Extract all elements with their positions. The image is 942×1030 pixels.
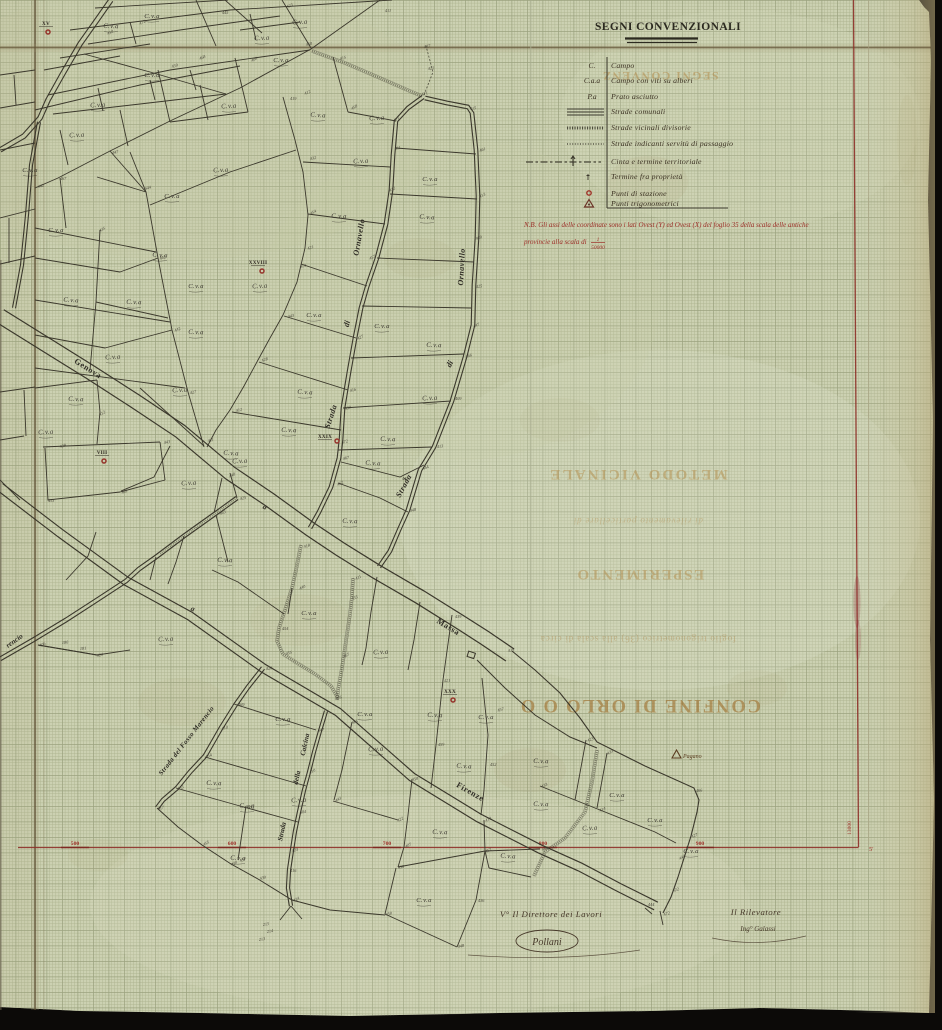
svg-text:Strade vicinali divisorie: Strade vicinali divisorie bbox=[611, 123, 691, 132]
svg-text:C.v.a: C.v.a bbox=[353, 158, 369, 166]
svg-text:C.v.a: C.v.a bbox=[422, 176, 438, 183]
svg-text:C.v.a: C.v.a bbox=[254, 35, 270, 43]
svg-text:439: 439 bbox=[455, 614, 462, 619]
svg-text:C.v.a: C.v.a bbox=[374, 323, 390, 330]
svg-text:C.v.a: C.v.a bbox=[533, 758, 549, 766]
svg-text:C.v.a: C.v.a bbox=[206, 780, 222, 788]
svg-text:C.v.a: C.v.a bbox=[422, 395, 438, 403]
svg-text:Strade indicanti servitù di pa: Strade indicanti servitù di passaggio bbox=[611, 139, 733, 148]
svg-text:C.a.a: C.a.a bbox=[584, 76, 601, 85]
svg-text:C.v.a: C.v.a bbox=[172, 387, 188, 395]
svg-text:Ing° Galassi: Ing° Galassi bbox=[739, 925, 775, 933]
svg-text:C.v.a: C.v.a bbox=[427, 712, 443, 720]
svg-text:VIII: VIII bbox=[97, 450, 108, 456]
svg-text:500: 500 bbox=[71, 841, 80, 847]
svg-text:C.v.a: C.v.a bbox=[213, 167, 229, 175]
svg-text:C.v.a: C.v.a bbox=[217, 557, 233, 565]
svg-text:Strade comunali: Strade comunali bbox=[611, 107, 665, 116]
svg-text:900: 900 bbox=[696, 841, 705, 847]
svg-text:N.B. Gli assi delle coordinate: N.B. Gli assi delle coordinate sono i la… bbox=[523, 221, 809, 229]
svg-text:445: 445 bbox=[222, 10, 229, 15]
svg-text:METODO VICINALE: METODO VICINALE bbox=[548, 466, 728, 482]
svg-text:C.v.a: C.v.a bbox=[90, 102, 106, 110]
svg-text:C.v.a: C.v.a bbox=[647, 817, 663, 824]
svg-text:ESPERIMENTO: ESPERIMENTO bbox=[576, 566, 704, 582]
svg-text:foglio trigonometrico (36) all: foglio trigonometrico (36) alla scala di… bbox=[540, 634, 736, 644]
svg-text:467: 467 bbox=[60, 176, 67, 181]
svg-text:C.v.a: C.v.a bbox=[533, 801, 549, 809]
svg-text:1: 1 bbox=[597, 237, 600, 243]
svg-text:C.v.a: C.v.a bbox=[126, 299, 142, 307]
svg-text:700: 700 bbox=[383, 841, 392, 847]
svg-text:419: 419 bbox=[290, 96, 297, 101]
svg-text:C.v.a: C.v.a bbox=[275, 716, 291, 723]
svg-text:C.v.a: C.v.a bbox=[181, 480, 197, 488]
svg-text:XV: XV bbox=[42, 21, 50, 27]
svg-text:C.v.a: C.v.a bbox=[426, 342, 442, 350]
svg-text:C.v.a: C.v.a bbox=[365, 459, 381, 467]
svg-text:C.v.a: C.v.a bbox=[22, 167, 38, 174]
svg-text:C.v.a: C.v.a bbox=[188, 283, 204, 290]
svg-text:444: 444 bbox=[648, 902, 655, 907]
svg-text:C.v.a: C.v.a bbox=[432, 829, 448, 837]
svg-text:C.v.a: C.v.a bbox=[105, 354, 121, 362]
svg-text:C.v.a: C.v.a bbox=[232, 458, 248, 466]
svg-text:C.v.a: C.v.a bbox=[48, 227, 64, 234]
svg-text:XXX: XXX bbox=[444, 689, 456, 695]
svg-text:Punti di stazione: Punti di stazione bbox=[610, 189, 667, 198]
svg-text:Punti trigonometrici: Punti trigonometrici bbox=[610, 199, 679, 208]
svg-text:C.v.a: C.v.a bbox=[252, 283, 268, 291]
svg-text:C.v.a: C.v.a bbox=[342, 518, 358, 526]
svg-text:Il Rilevatore: Il Rilevatore bbox=[730, 907, 781, 917]
svg-text:Cinta e termine territoriale: Cinta e termine territoriale bbox=[611, 157, 702, 166]
svg-text:C.v.a: C.v.a bbox=[582, 825, 598, 833]
svg-text:C.v.a: C.v.a bbox=[281, 427, 297, 435]
svg-text:421: 421 bbox=[444, 678, 451, 683]
svg-text:Pagano: Pagano bbox=[682, 754, 702, 760]
svg-text:C.v.a: C.v.a bbox=[292, 19, 308, 27]
svg-text:452: 452 bbox=[490, 762, 497, 767]
svg-text:436: 436 bbox=[478, 898, 485, 903]
svg-text:di rilevamento particellare di: di rilevamento particellare di bbox=[573, 516, 703, 526]
svg-text:454: 454 bbox=[282, 626, 289, 631]
svg-text:C.v.a: C.v.a bbox=[310, 111, 326, 119]
svg-text:C.v.a: C.v.a bbox=[68, 396, 84, 404]
svg-text:C.v.a: C.v.a bbox=[416, 897, 432, 904]
svg-text:provincie alla scala di: provincie alla scala di bbox=[523, 238, 587, 246]
svg-text:413: 413 bbox=[437, 443, 444, 449]
svg-text:C.v.a: C.v.a bbox=[368, 746, 384, 754]
svg-text:Campo con viti su alberi: Campo con viti su alberi bbox=[611, 76, 693, 85]
svg-text:C.v.a: C.v.a bbox=[63, 296, 79, 304]
svg-text:C.v.a: C.v.a bbox=[331, 213, 347, 221]
svg-text:466: 466 bbox=[696, 788, 704, 793]
svg-text:SEGNI CONVENZIONALI: SEGNI CONVENZIONALI bbox=[595, 21, 741, 33]
svg-text:CONFINE DI ORLO O O: CONFINE DI ORLO O O bbox=[519, 695, 761, 715]
svg-text:C.v.a: C.v.a bbox=[144, 72, 160, 79]
svg-text:C.v.a: C.v.a bbox=[373, 649, 389, 657]
svg-text:C.: C. bbox=[589, 61, 596, 70]
svg-text:Termine fra proprietà: Termine fra proprietà bbox=[611, 172, 683, 181]
svg-text:411: 411 bbox=[385, 8, 391, 13]
svg-text:C.v.a: C.v.a bbox=[301, 610, 317, 617]
svg-text:469: 469 bbox=[238, 702, 245, 707]
svg-text:C.v.a: C.v.a bbox=[306, 312, 322, 319]
svg-text:V° Il Direttore dei Lavori: V° Il Direttore dei Lavori bbox=[500, 909, 602, 919]
svg-text:409: 409 bbox=[455, 396, 462, 401]
svg-text:C.v.a: C.v.a bbox=[291, 797, 307, 805]
svg-text:181: 181 bbox=[80, 645, 87, 651]
svg-text:600: 600 bbox=[228, 841, 237, 847]
svg-text:C.v.a: C.v.a bbox=[369, 115, 385, 123]
svg-text:C.v.a: C.v.a bbox=[221, 103, 237, 111]
svg-text:C.v.a: C.v.a bbox=[609, 792, 625, 799]
svg-text:5': 5' bbox=[869, 846, 873, 853]
svg-text:C.v.a: C.v.a bbox=[158, 636, 174, 644]
svg-text:P.a: P.a bbox=[586, 92, 596, 101]
svg-text:C.v.a: C.v.a bbox=[223, 449, 239, 457]
svg-text:C.v.a: C.v.a bbox=[69, 132, 85, 140]
svg-text:C.v.a: C.v.a bbox=[683, 848, 699, 855]
svg-text:C.v.a: C.v.a bbox=[478, 714, 494, 721]
svg-text:C.v.a: C.v.a bbox=[144, 13, 160, 20]
svg-text:C.v.a: C.v.a bbox=[188, 329, 204, 337]
svg-text:C.v.a: C.v.a bbox=[297, 388, 313, 396]
svg-text:C.v.a: C.v.a bbox=[419, 213, 435, 221]
svg-text:Prato asciutto: Prato asciutto bbox=[610, 92, 658, 101]
svg-text:C.v.a: C.v.a bbox=[38, 429, 54, 437]
svg-text:Campo: Campo bbox=[611, 61, 635, 70]
svg-text:C.v.a: C.v.a bbox=[164, 193, 180, 200]
svg-text:50000: 50000 bbox=[591, 245, 605, 251]
svg-text:Pollani: Pollani bbox=[531, 937, 562, 948]
svg-text:C.v.a: C.v.a bbox=[456, 762, 472, 770]
svg-text:416: 416 bbox=[290, 868, 297, 873]
svg-text:453: 453 bbox=[48, 498, 55, 503]
svg-text:C.v.a: C.v.a bbox=[500, 852, 516, 860]
svg-text:XXIX: XXIX bbox=[318, 434, 332, 440]
svg-text:XXVIII: XXVIII bbox=[249, 260, 268, 266]
svg-text:13000: 13000 bbox=[847, 821, 853, 835]
svg-text:415: 415 bbox=[402, 476, 409, 481]
svg-text:C.v.a: C.v.a bbox=[273, 57, 289, 64]
svg-text:459: 459 bbox=[438, 742, 446, 747]
svg-text:C.v.a: C.v.a bbox=[380, 436, 396, 444]
svg-text:C.v.a: C.v.a bbox=[357, 711, 373, 718]
